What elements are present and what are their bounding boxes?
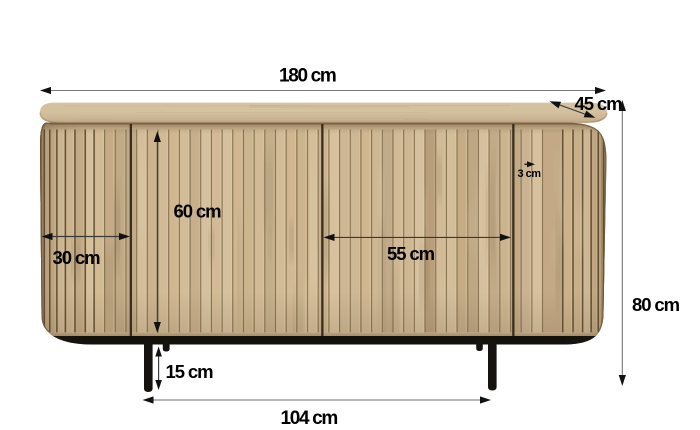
svg-text:3 cm: 3 cm <box>518 168 542 180</box>
svg-text:30 cm: 30 cm <box>53 247 101 268</box>
svg-text:104 cm: 104 cm <box>281 408 338 429</box>
svg-text:55 cm: 55 cm <box>387 243 435 264</box>
svg-text:15 cm: 15 cm <box>166 361 214 382</box>
svg-text:60 cm: 60 cm <box>174 201 222 222</box>
svg-text:80 cm: 80 cm <box>632 294 680 315</box>
svg-text:180 cm: 180 cm <box>279 66 336 87</box>
svg-text:45 cm: 45 cm <box>575 93 623 114</box>
